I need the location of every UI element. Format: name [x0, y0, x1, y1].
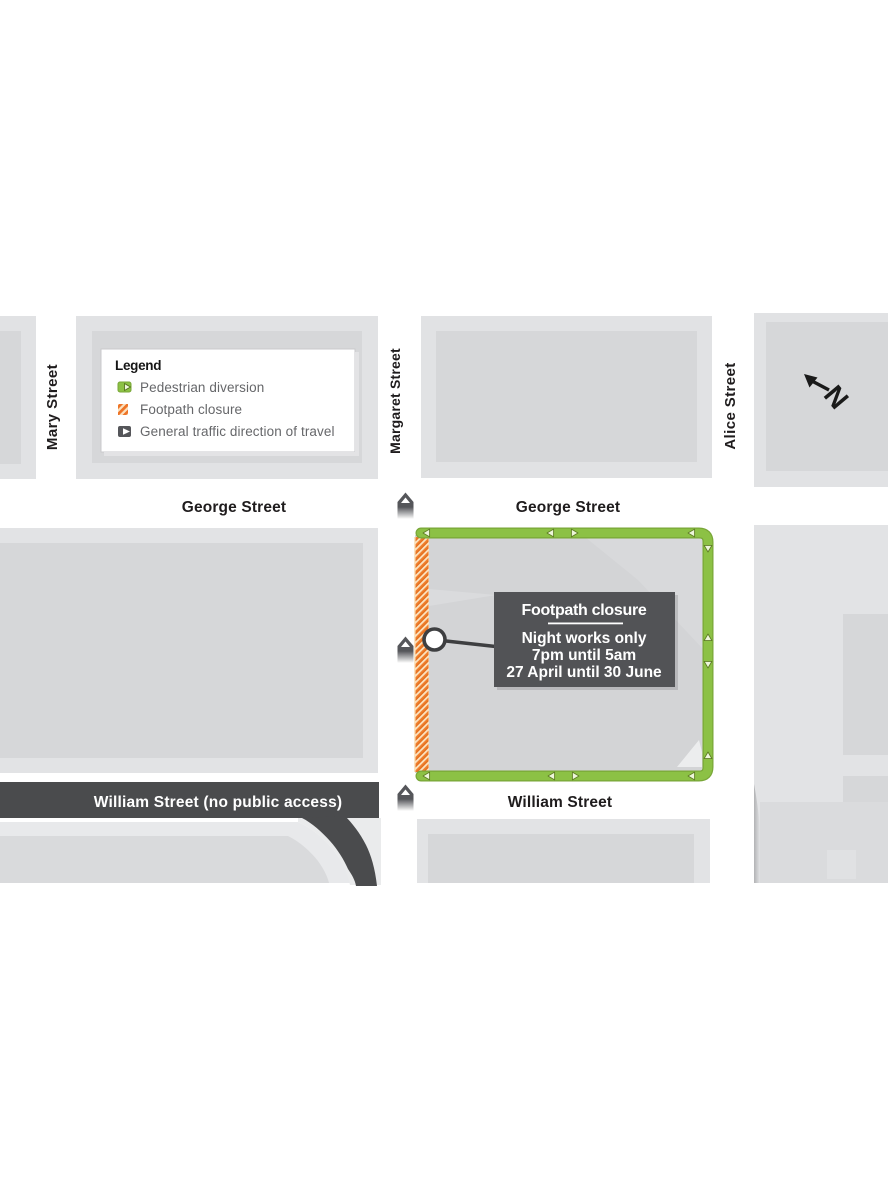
svg-text:Legend: Legend [115, 358, 161, 373]
svg-text:7pm until 5am: 7pm until 5am [532, 647, 636, 664]
svg-text:George Street: George Street [516, 499, 620, 516]
svg-text:Margaret Street: Margaret Street [387, 348, 403, 454]
svg-text:Footpath closure: Footpath closure [522, 602, 647, 619]
svg-text:William Street (no public acce: William Street (no public access) [94, 794, 343, 811]
svg-text:Mary Street: Mary Street [44, 364, 61, 450]
svg-text:Night works only: Night works only [522, 630, 647, 647]
svg-text:Alice Street: Alice Street [722, 362, 739, 449]
svg-text:George Street: George Street [182, 499, 286, 516]
svg-text:General traffic direction of t: General traffic direction of travel [140, 424, 335, 439]
svg-text:Pedestrian diversion: Pedestrian diversion [140, 380, 264, 395]
svg-text:27 April until 30 June: 27 April until 30 June [506, 664, 662, 681]
svg-text:Footpath closure: Footpath closure [140, 402, 242, 417]
svg-text:William Street: William Street [508, 794, 612, 811]
